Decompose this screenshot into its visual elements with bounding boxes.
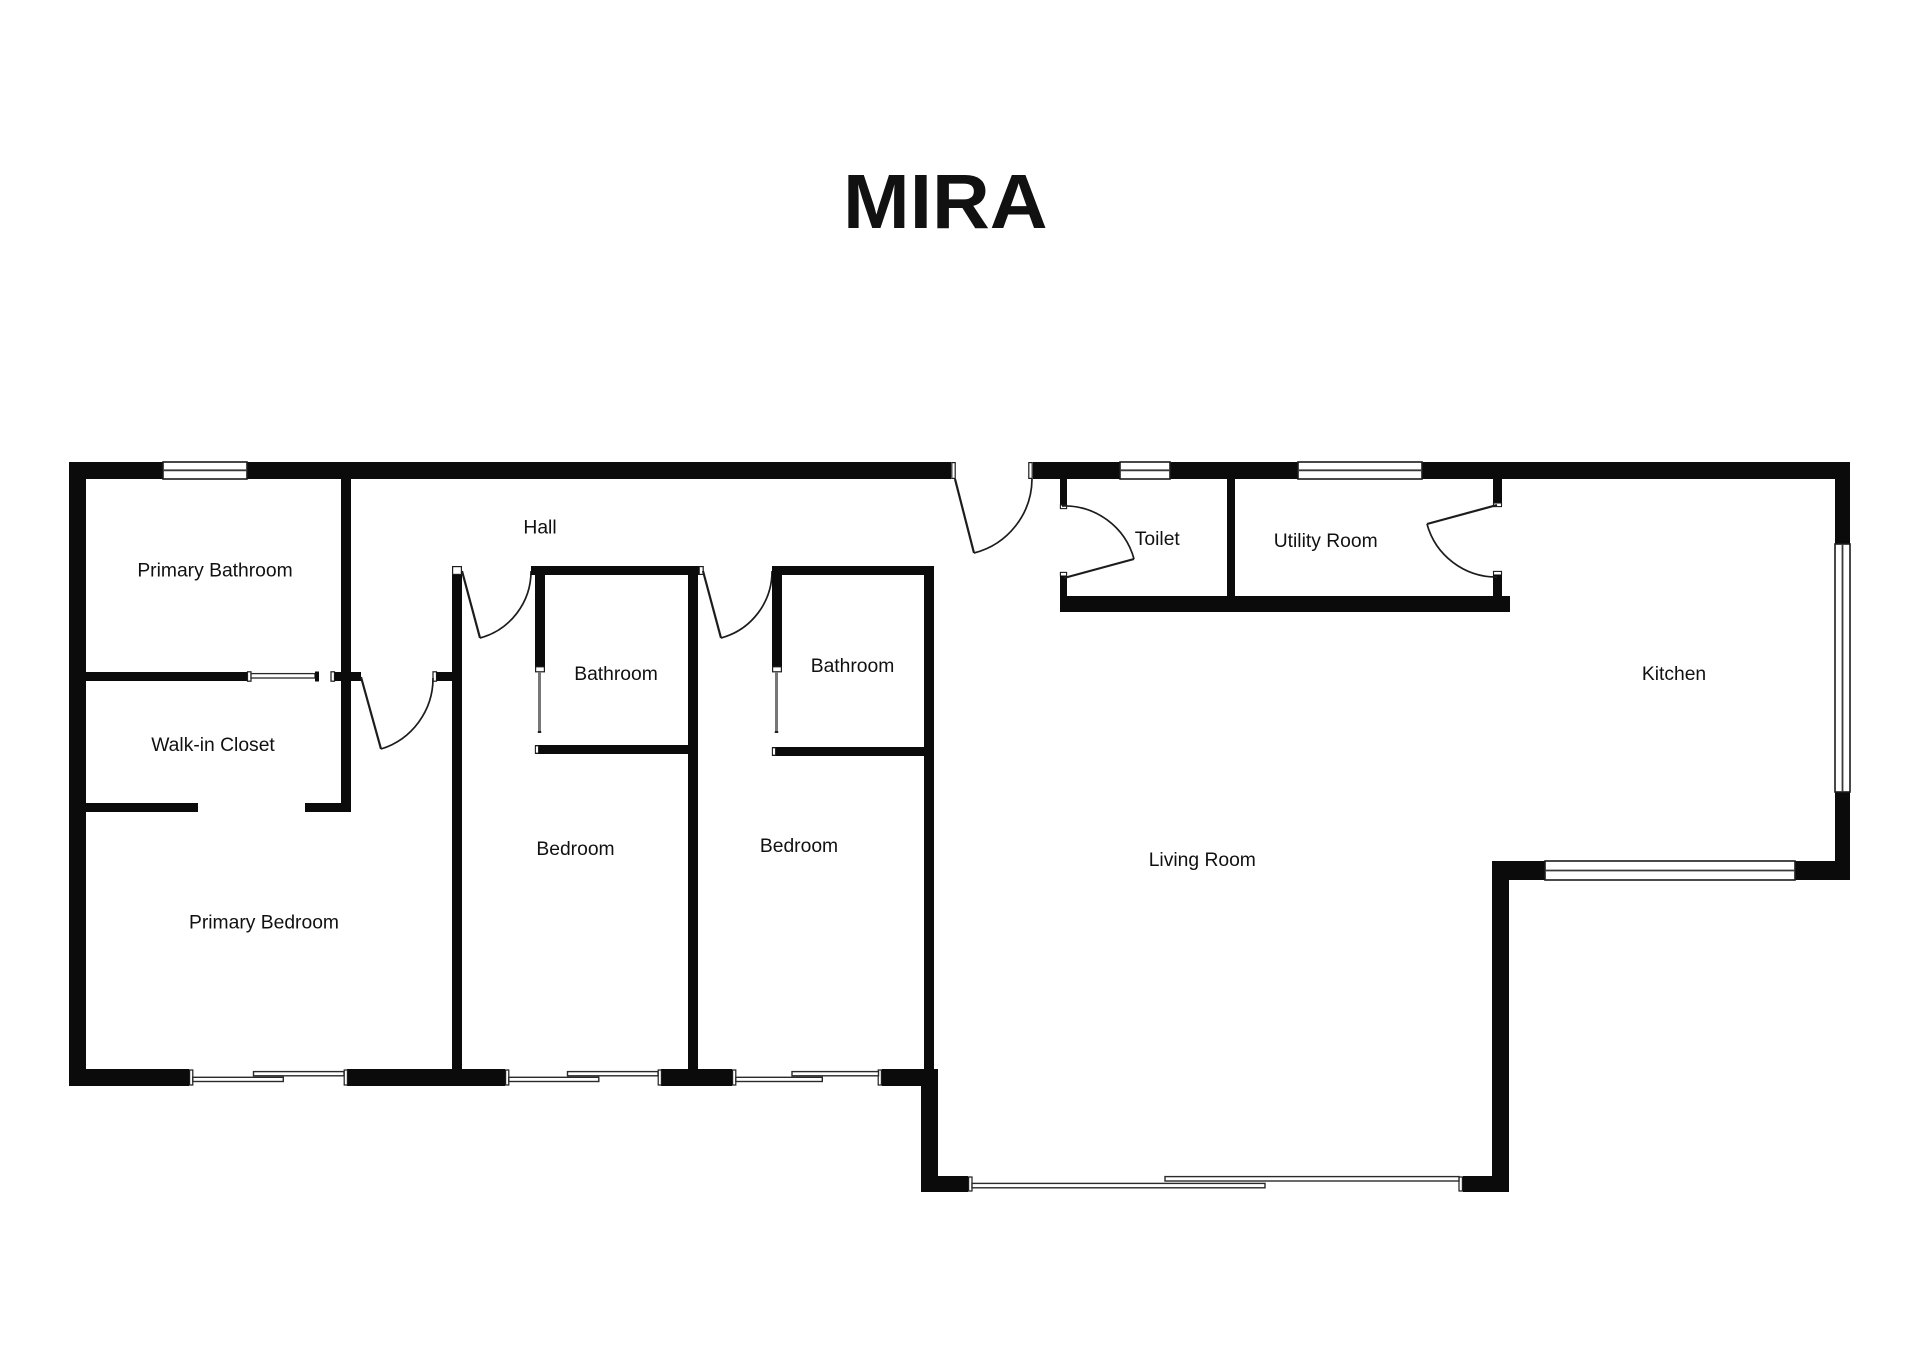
svg-text:Hall: Hall xyxy=(523,517,556,538)
svg-text:Bathroom: Bathroom xyxy=(574,664,658,685)
svg-text:Walk-in Closet: Walk-in Closet xyxy=(151,735,275,756)
svg-text:Living Room: Living Room xyxy=(1149,850,1256,871)
svg-text:Bedroom: Bedroom xyxy=(536,839,614,860)
svg-text:MIRA: MIRA xyxy=(843,158,1048,244)
svg-text:Primary Bathroom: Primary Bathroom xyxy=(137,561,292,582)
svg-text:Bedroom: Bedroom xyxy=(760,836,838,857)
svg-text:Toilet: Toilet xyxy=(1135,529,1181,550)
svg-text:Bathroom: Bathroom xyxy=(811,656,895,677)
svg-text:Primary Bedroom: Primary Bedroom xyxy=(189,912,339,933)
svg-text:Utility Room: Utility Room xyxy=(1274,531,1378,552)
svg-text:Kitchen: Kitchen xyxy=(1642,664,1706,685)
